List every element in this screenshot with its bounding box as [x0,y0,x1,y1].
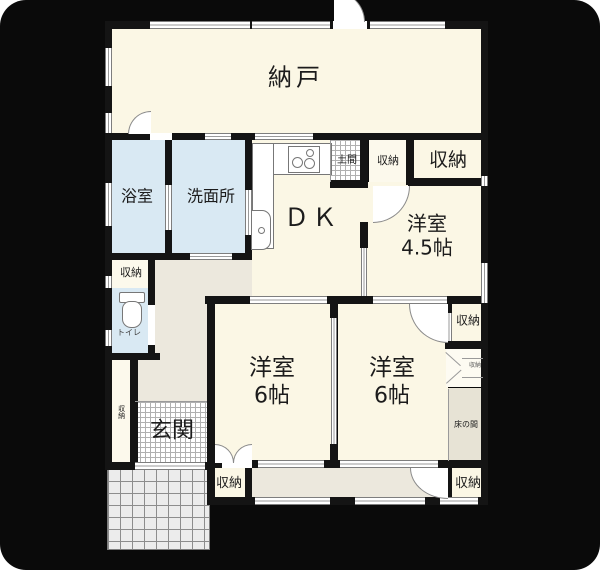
label-closet-top-small: 収納 [377,155,399,167]
door-opening-nando-top [333,21,367,29]
wall-partition-top [330,304,338,318]
bifold-shelf-line-1 [462,358,483,359]
label-closet-top-large: 収納 [429,151,467,171]
window-top-1 [150,21,250,29]
label-yoshitsu6L-size: 6帖 [254,384,290,407]
label-closet-right-bottom: 収納 [455,477,481,491]
plan-background: 納戸 浴室 洗面所 ＤＫ 土間 収納 収納 洋室 4.5帖 収納 トイレ 収納 … [0,0,600,570]
door-toilet [148,305,155,345]
label-closet-bottom-left: 収納 [216,477,242,491]
window-bottom-2 [355,497,425,505]
wall-doma-bottom [330,180,366,188]
wall-below-large-closet [408,178,488,186]
slider-6R-corridor [340,460,438,468]
label-toilet: トイレ [117,329,141,337]
label-genkan: 玄関 [150,419,194,442]
slider-partition-6rooms [331,318,337,444]
stove-burner-small [306,149,314,157]
label-closet-above-toilet: 収納 [120,267,142,279]
kitchen-sink [251,210,271,250]
stove [288,146,320,173]
label-closet-right-top: 収納 [456,315,480,328]
window-right-small [481,176,488,186]
genkan-step-line [135,401,207,402]
wall-below-toilet [105,353,160,360]
door-arc-nando-top [334,0,365,22]
floorplan-image: 納戸 浴室 洗面所 ＤＫ 土間 収納 収納 洋室 4.5帖 収納 トイレ 収納 … [0,0,600,570]
doma-edge-line [330,140,331,182]
slider-dk-6L [250,296,327,304]
slider-45-6R [373,296,447,304]
wall-dk-45-mid [360,222,368,248]
wall-rooms-top-b [327,296,373,304]
window-left-1 [105,48,112,86]
slider-bath-wash [165,185,172,230]
window-top-2 [252,21,330,29]
room-yoshitsu6-left [215,302,331,462]
wall-outer-left [105,21,112,470]
label-yoshitsu45-name: 洋室 [407,214,447,235]
label-dk: ＤＫ [284,205,340,231]
slider-washroom-hall [190,253,232,260]
label-washroom: 洗面所 [187,189,235,206]
hall-lower [138,360,215,402]
label-closet-left-tall: 収納 [117,405,124,419]
toilet-bowl [122,301,142,328]
sink-drain [258,227,265,234]
label-yoshitsu6L-name: 洋室 [249,356,295,380]
wall-hall-yoshitsu6L [207,302,215,505]
wall-rooms-top-a [205,296,250,304]
label-closet-right-mid: 収納 [469,363,481,369]
label-yoshitsu6R-name: 洋室 [369,356,415,380]
tokonoma-edge-line [448,389,449,461]
window-top-3 [370,21,445,29]
window-left-toilet [105,330,112,346]
window-nando-bottom-1 [205,133,231,140]
slider-6L-corridor [258,460,324,468]
window-kitchen-top [255,133,313,140]
label-bathroom: 浴室 [121,189,153,206]
window-left-bath [105,183,112,226]
wall-rc-h1 [445,341,488,349]
window-bottom-1 [255,497,330,505]
label-doma: 土間 [337,156,357,167]
bifold-shelf-line-2 [462,377,483,378]
door-opening-nando-inner [150,133,172,140]
window-left-toilet-top [105,276,112,288]
wall-leftcloset-right [130,360,138,465]
window-right-45room [481,263,488,303]
label-tokonoma: 床の間 [454,421,478,429]
slider-dk-45 [361,248,367,296]
label-nando: 納戸 [268,65,324,90]
label-yoshitsu6R-size: 6帖 [374,384,410,407]
stove-burner-left [292,157,303,168]
entrance-sliding-door [135,462,205,470]
entrance-porch [107,468,210,550]
stove-burner-right [304,158,315,169]
wall-closetBL-right [245,462,252,505]
label-yoshitsu45-size: 4.5帖 [401,238,453,259]
window-left-2 [105,113,112,133]
